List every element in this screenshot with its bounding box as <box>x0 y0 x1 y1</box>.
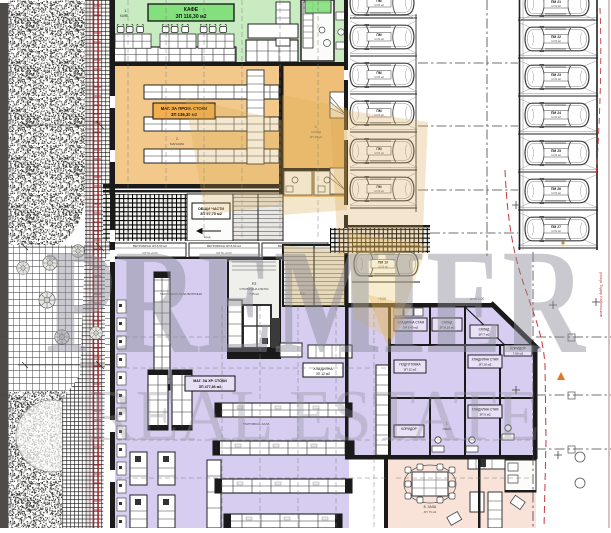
svg-text:12,50 м2: 12,50 м2 <box>551 40 561 43</box>
svg-text:12,50 м2: 12,50 м2 <box>551 116 561 119</box>
svg-text:8. ЗАЛА: 8. ЗАЛА <box>424 505 437 509</box>
svg-text:12,50 м2: 12,50 м2 <box>374 38 384 41</box>
svg-text:1.: 1. <box>124 8 127 13</box>
svg-text:12,50 м2: 12,50 м2 <box>551 5 561 8</box>
svg-text:12,50 м2: 12,50 м2 <box>374 4 384 7</box>
svg-text:улица Тодор Каблешков: улица Тодор Каблешков <box>599 272 604 317</box>
svg-text:REAL ESTATE: REAL ESTATE <box>88 375 540 456</box>
svg-text:ПМ: ПМ <box>376 0 381 3</box>
svg-text:12,50 м2: 12,50 м2 <box>551 154 561 157</box>
svg-text:ПМ: ПМ <box>376 71 381 75</box>
svg-text:12,50 м2: 12,50 м2 <box>374 76 384 79</box>
svg-text:12,50 м2: 12,50 м2 <box>551 192 561 195</box>
svg-text:ПМ: ПМ <box>376 33 381 37</box>
svg-text:PREMIER: PREMIER <box>45 219 586 385</box>
svg-text:МАГАЗИН: МАГАЗИН <box>170 142 184 146</box>
svg-text:ЗП 116,30 м2: ЗП 116,30 м2 <box>175 14 206 20</box>
svg-text:ПМ: ПМ <box>376 109 381 113</box>
svg-text:ПМ 24: ПМ 24 <box>551 111 561 115</box>
svg-text:ПМ 26: ПМ 26 <box>551 187 561 191</box>
svg-text:ПМ 21: ПМ 21 <box>551 0 561 4</box>
svg-text:КАФЕ: КАФЕ <box>184 7 199 13</box>
svg-text:12,50 м2: 12,50 м2 <box>551 78 561 81</box>
svg-text:КАФЕ: КАФЕ <box>120 14 128 18</box>
svg-text:ПМ 25: ПМ 25 <box>551 149 561 153</box>
svg-text:ЗП 76 м2: ЗП 76 м2 <box>424 510 437 514</box>
svg-text:ПМ 22: ПМ 22 <box>551 35 561 39</box>
svg-text:2.: 2. <box>176 137 179 141</box>
svg-text:ПМ 23: ПМ 23 <box>551 73 561 77</box>
